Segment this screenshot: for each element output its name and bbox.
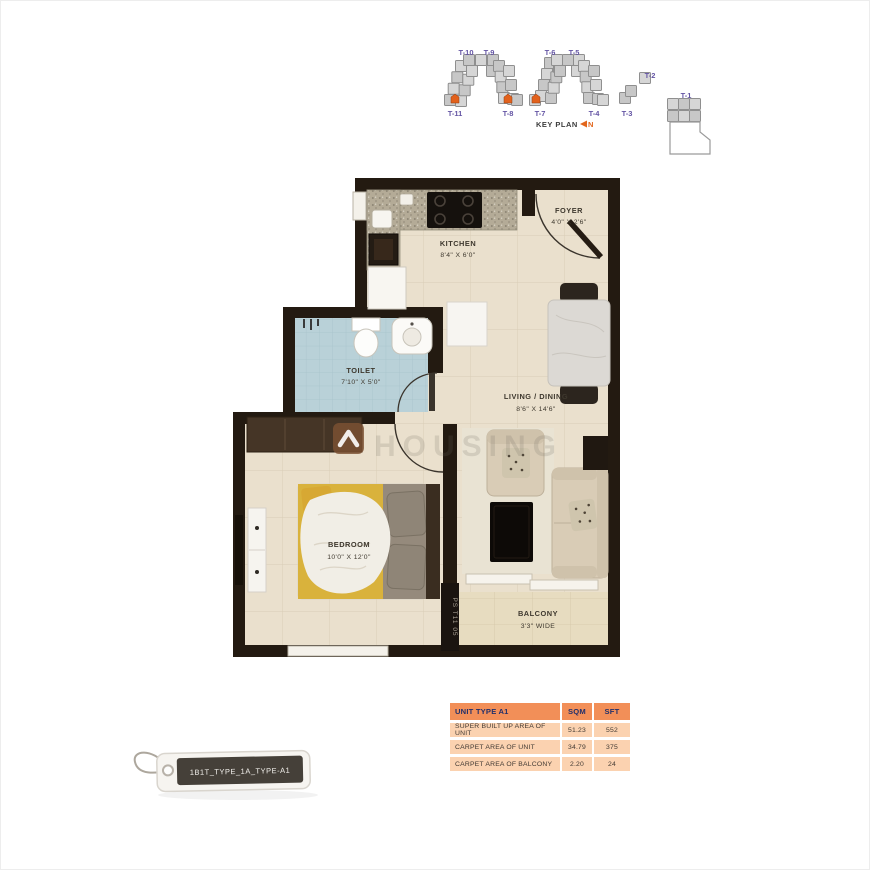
bedroom-dresser xyxy=(248,508,266,592)
key-plan-title: KEY PLAN xyxy=(536,120,578,129)
coffee-table xyxy=(490,502,533,562)
table-row-label: CARPET AREA OF UNIT xyxy=(450,740,560,754)
table-header-sft: SFT xyxy=(594,703,630,720)
unit-type-tag: 1B1T_TYPE_1A_TYPE-A1 xyxy=(120,735,340,815)
sofa xyxy=(552,468,608,578)
headboard xyxy=(426,484,440,599)
t1-site-outline xyxy=(670,122,710,154)
kitchen-sink xyxy=(372,210,392,228)
bedroom-dims: 10'0" X 12'0" xyxy=(327,554,371,561)
washbasin xyxy=(392,318,432,354)
kitchen-cabinet xyxy=(368,267,406,309)
watermark-text: HOUSING xyxy=(374,430,563,463)
stack-label-strip: PS T11 05 xyxy=(441,583,459,651)
table-header-sqm: SQM xyxy=(562,703,592,720)
north-label: N xyxy=(588,120,593,129)
table-row-sft: 24 xyxy=(594,757,630,771)
table-row-sqm: 34.79 xyxy=(562,740,592,754)
tower-label: T-4 xyxy=(589,109,601,118)
table-row-sft: 375 xyxy=(594,740,630,754)
living-dims: 8'6" X 14'6" xyxy=(516,406,556,413)
tower-label: T-1 xyxy=(681,91,692,100)
key-plan-tower-blocks xyxy=(445,55,701,122)
tower-label: T-7 xyxy=(535,109,546,118)
oven-appliance xyxy=(369,234,398,265)
tower-label: T-8 xyxy=(503,109,514,118)
table-row-sft: 552 xyxy=(594,723,630,737)
kitchen-dims: 8'4" X 6'0" xyxy=(440,252,475,259)
table-row-sqm: 51.23 xyxy=(562,723,592,737)
area-table: UNIT TYPE A1 SQM SFT SUPER BUILT UP AREA… xyxy=(450,703,630,771)
kitchen-shelf xyxy=(400,194,413,205)
tower-label: T-5 xyxy=(569,48,580,57)
tower-label: T-10 xyxy=(458,48,473,57)
table-row-sqm: 2.20 xyxy=(562,757,592,771)
floor-plan: PS T11 05 KITCHEN 8'4" X 6'0" FOYER 4'0"… xyxy=(225,170,635,665)
living-label: LIVING / DINING xyxy=(504,392,568,401)
tower-label: T-2 xyxy=(645,71,656,80)
wall-shade-strip xyxy=(235,515,243,585)
tower-label: T-11 xyxy=(448,109,463,118)
tv-console xyxy=(583,436,608,470)
bedroom-window xyxy=(288,646,388,656)
table-header-title: UNIT TYPE A1 xyxy=(450,703,560,720)
floor-plan-page: T-10 T-9 T-6 T-5 T-2 T-11 T-8 T-7 T-4 T-… xyxy=(0,0,870,870)
tower-label: T-9 xyxy=(484,48,495,57)
table-row-label: CARPET AREA OF BALCONY xyxy=(450,757,560,771)
tag-hole xyxy=(163,765,173,775)
dining-set xyxy=(548,283,610,404)
wc-toilet xyxy=(352,318,380,357)
kitchen-window xyxy=(353,192,366,220)
key-plan: T-10 T-9 T-6 T-5 T-2 T-11 T-8 T-7 T-4 T-… xyxy=(420,38,720,165)
kitchen-label: KITCHEN xyxy=(440,239,476,248)
foyer-label: FOYER xyxy=(555,206,583,215)
table-row-label: SUPER BUILT UP AREA OF UNIT xyxy=(450,723,560,737)
dining-table xyxy=(548,300,610,386)
room-balcony xyxy=(459,592,608,645)
foyer-dims: 4'0" X 2'6" xyxy=(551,219,586,226)
stack-label: PS T11 05 xyxy=(451,597,458,636)
toilet-label: TOILET xyxy=(346,366,375,375)
north-arrow-icon xyxy=(580,121,587,128)
toilet-dims: 7'10" X 5'0" xyxy=(341,379,381,386)
shoe-cabinet xyxy=(447,302,487,346)
tower-label: T-3 xyxy=(622,109,633,118)
cooktop xyxy=(427,192,482,228)
tower-label: T-6 xyxy=(545,48,556,57)
balcony-dims: 3'3" WIDE xyxy=(521,623,556,630)
bedroom-label: BEDROOM xyxy=(328,540,370,549)
balcony-label: BALCONY xyxy=(518,609,558,618)
